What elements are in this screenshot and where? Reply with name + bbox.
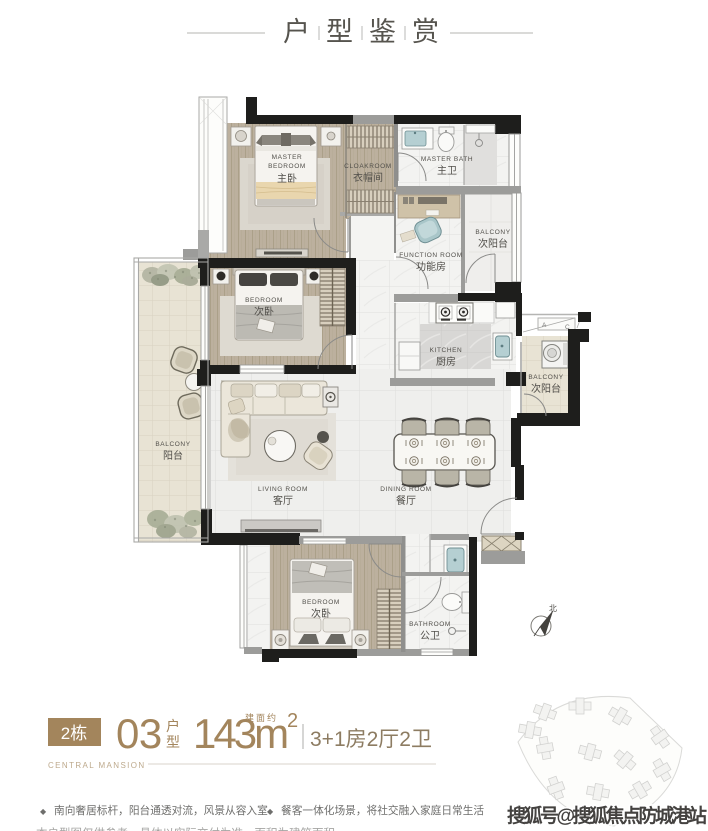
- svg-text:建面约: 建面约: [245, 712, 278, 723]
- svg-text:次卧: 次卧: [254, 305, 274, 318]
- svg-text:BEDROOM: BEDROOM: [302, 599, 340, 606]
- svg-text:主卫: 主卫: [437, 165, 457, 177]
- svg-text:CENTRAL MANSION: CENTRAL MANSION: [48, 761, 146, 770]
- svg-text:BALCONY: BALCONY: [528, 374, 563, 381]
- svg-text:LIVING ROOM: LIVING ROOM: [258, 486, 308, 493]
- svg-text:MASTER BATH: MASTER BATH: [421, 156, 473, 163]
- svg-text:CLOAKROOM: CLOAKROOM: [344, 163, 392, 170]
- svg-text:衣帽间: 衣帽间: [353, 171, 383, 184]
- svg-text:户: 户: [166, 718, 180, 734]
- svg-text:A: A: [542, 322, 547, 329]
- svg-text:主卧: 主卧: [277, 172, 297, 185]
- svg-text:BALCONY: BALCONY: [155, 441, 190, 448]
- svg-text:次阳台: 次阳台: [531, 382, 561, 395]
- svg-text:◆: ◆: [267, 807, 274, 816]
- svg-text:MASTER: MASTER: [272, 154, 303, 161]
- svg-text:南向奢居标杆，阳台通透对流，风景从容入室: 南向奢居标杆，阳台通透对流，风景从容入室: [54, 804, 268, 817]
- svg-text:DINING ROOM: DINING ROOM: [380, 486, 431, 493]
- svg-text:户型鉴赏: 户型鉴赏: [283, 17, 455, 47]
- svg-text:KITCHEN: KITCHEN: [430, 347, 463, 354]
- svg-text:功能房: 功能房: [416, 260, 446, 273]
- svg-text:2: 2: [287, 710, 298, 732]
- svg-text:次卧: 次卧: [311, 607, 331, 620]
- svg-text:公卫: 公卫: [420, 631, 440, 642]
- svg-text:搜狐号@搜狐焦点防城港站: 搜狐号@搜狐焦点防城港站: [507, 804, 707, 827]
- svg-text:BEDROOM: BEDROOM: [245, 297, 283, 304]
- svg-text:BALCONY: BALCONY: [475, 229, 510, 236]
- svg-text:客厅: 客厅: [273, 494, 293, 507]
- svg-text:◆: ◆: [40, 807, 47, 816]
- svg-text:BEDROOM: BEDROOM: [268, 163, 306, 170]
- svg-text:北: 北: [549, 604, 557, 613]
- svg-text:FUNCTION ROOM: FUNCTION ROOM: [399, 252, 462, 259]
- svg-text:次阳台: 次阳台: [478, 237, 508, 250]
- svg-text:餐客一体化场景，将社交融入家庭日常生活: 餐客一体化场景，将社交融入家庭日常生活: [281, 804, 484, 817]
- svg-text:厨房: 厨房: [436, 355, 456, 368]
- svg-text:2栋: 2栋: [61, 724, 87, 743]
- svg-text:餐厅: 餐厅: [396, 494, 416, 507]
- svg-text:3+1房2厅2卫: 3+1房2厅2卫: [310, 728, 432, 751]
- svg-text:阳台: 阳台: [163, 449, 183, 462]
- svg-text:BATHROOM: BATHROOM: [409, 621, 451, 628]
- svg-text:型: 型: [166, 734, 180, 750]
- svg-text:03: 03: [116, 710, 162, 757]
